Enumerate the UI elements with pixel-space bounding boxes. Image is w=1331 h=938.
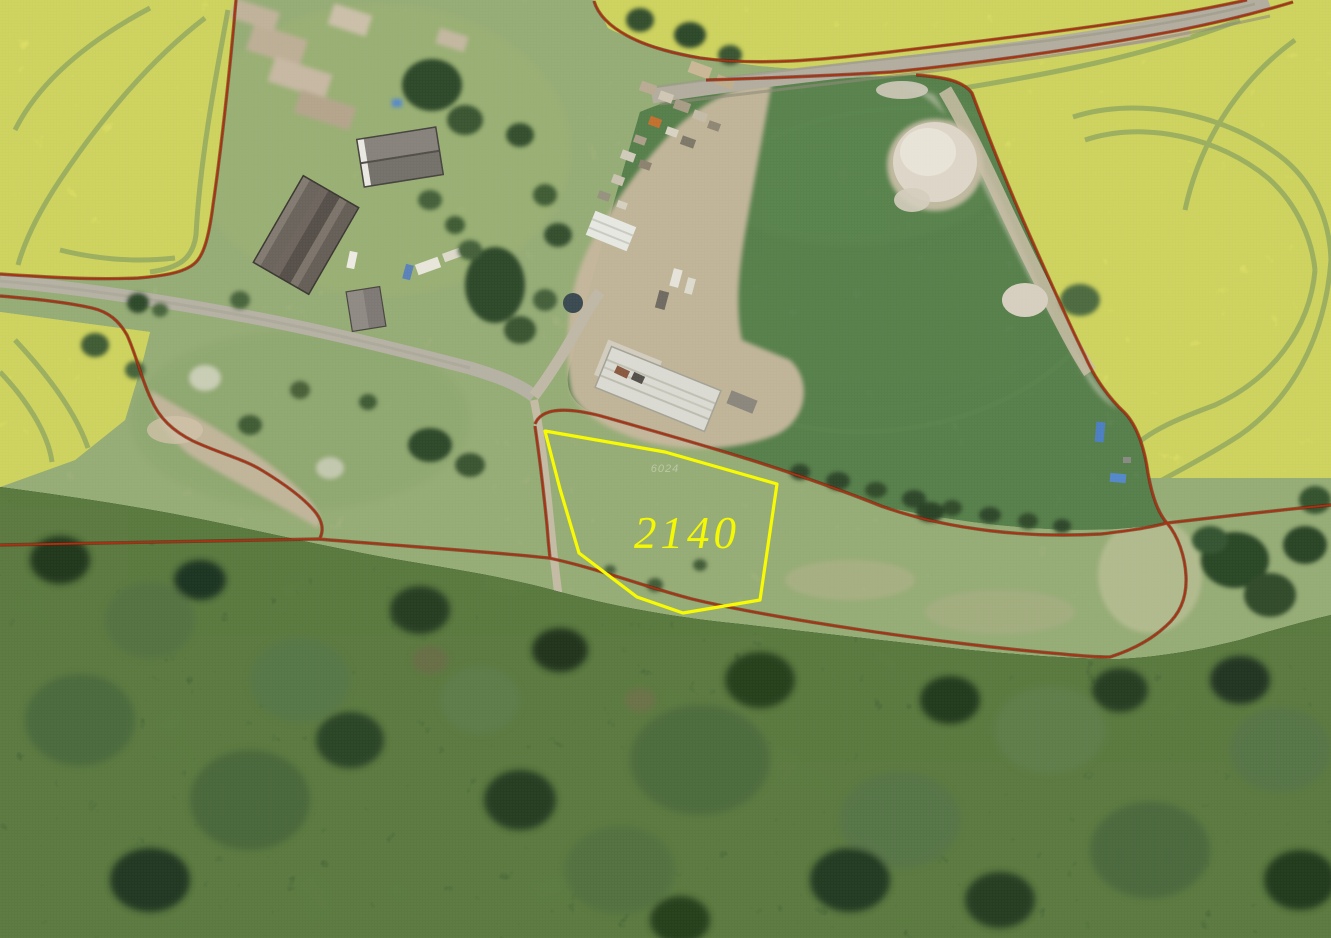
- aerial-map[interactable]: 6024 2140: [0, 0, 1331, 938]
- aerial-map-viewport[interactable]: 6024 2140: [0, 0, 1331, 938]
- dither-overlay: [0, 0, 1331, 938]
